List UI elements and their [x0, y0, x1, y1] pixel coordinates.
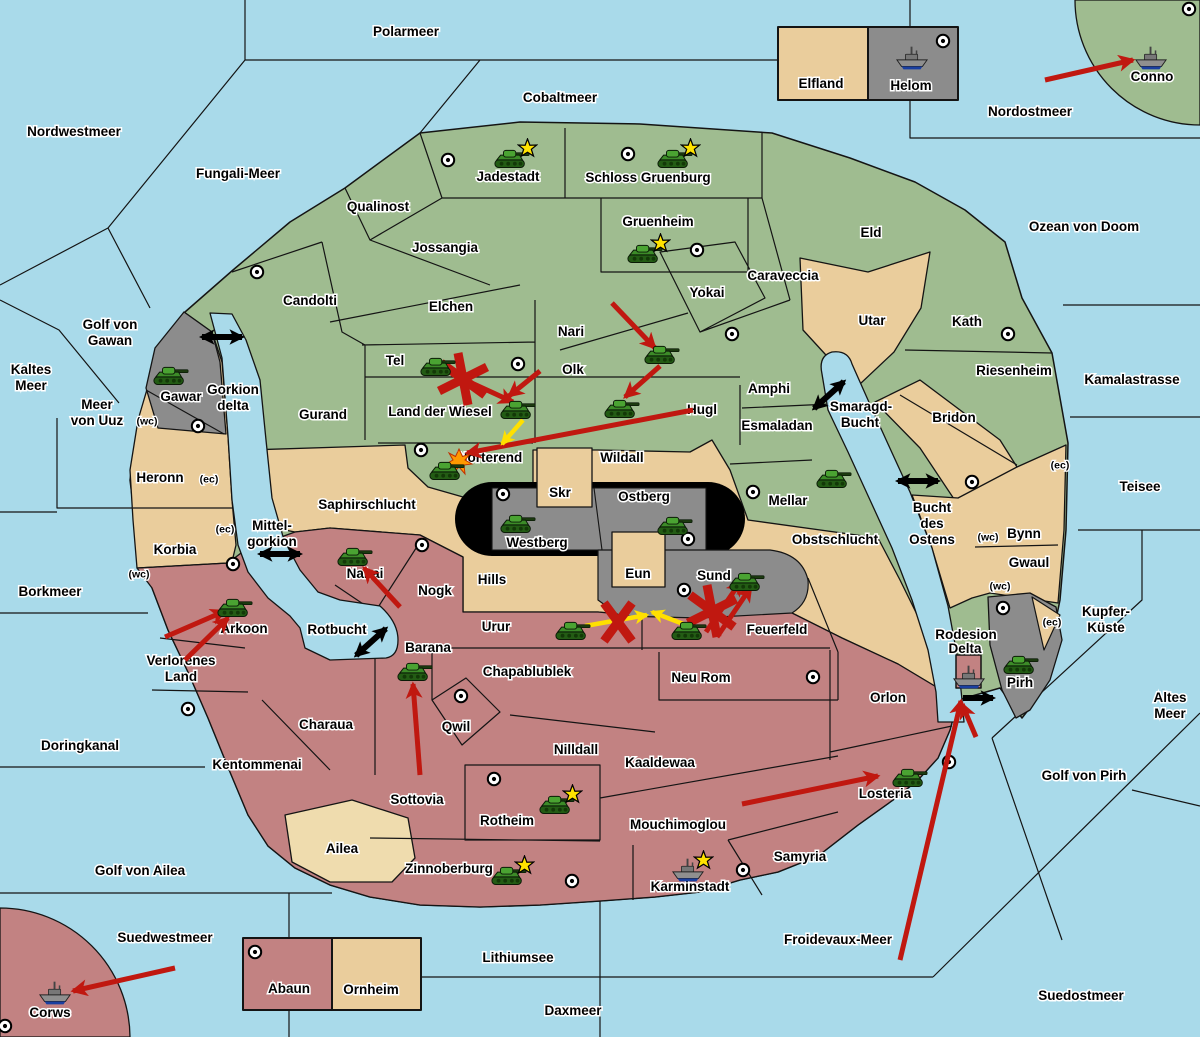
sea-label-bucht-32[interactable]: Bucht — [841, 415, 880, 430]
territory-label-ornheim-36[interactable]: Ornheim — [343, 982, 399, 997]
territory-label-corws-44[interactable]: Corws — [29, 1005, 70, 1020]
supply-center-dot — [1002, 328, 1014, 340]
territory-label-charaua-56[interactable]: Charaua — [299, 717, 354, 732]
territory-label-heronn-26[interactable]: Heronn — [136, 470, 183, 485]
territory-label-sund-41[interactable]: Sund — [697, 568, 731, 583]
sea-label-nordostmeer-3[interactable]: Nordostmeer — [988, 104, 1073, 119]
territory-label-bynn-30[interactable]: Bynn — [1007, 526, 1041, 541]
supply-center-dot — [966, 476, 978, 488]
territory-label-eld-7[interactable]: Eld — [860, 225, 881, 240]
sea-label-cobaltmeer-1[interactable]: Cobaltmeer — [523, 90, 598, 105]
game-map-screenshot: PolarmeerCobaltmeerNordwestmeerNordostme… — [0, 0, 1200, 1037]
sea-label-gawan-7[interactable]: Gawan — [88, 333, 132, 348]
sea-label-golf-von-pirh-19[interactable]: Golf von Pirh — [1042, 768, 1127, 783]
sea-label-suedwestmeer-23[interactable]: Suedwestmeer — [117, 930, 213, 945]
sea-label-fungali-meer-4[interactable]: Fungali-Meer — [196, 166, 281, 181]
territory-label-gurand-17[interactable]: Gurand — [299, 407, 347, 422]
territory-label-nari-10[interactable]: Nari — [558, 324, 584, 339]
supply-center-dot — [1183, 3, 1195, 15]
sea-label-meer-18[interactable]: Meer — [1154, 706, 1186, 721]
sea-label-froidevaux-meer-22[interactable]: Froidevaux-Meer — [784, 932, 893, 947]
sea-label-bucht-33[interactable]: Bucht — [913, 500, 952, 515]
territory-label-samyria-68[interactable]: Samyria — [774, 849, 827, 864]
territory-label-jadestadt-0[interactable]: Jadestadt — [476, 169, 540, 184]
territory-label-esmaladan-16[interactable]: Esmaladan — [741, 418, 812, 433]
sea-label-daxmeer-25[interactable]: Daxmeer — [544, 1003, 602, 1018]
coast-tag-wc-0: (wc) — [137, 416, 158, 428]
territory-label-schloss-gruenburg-1[interactable]: Schloss Gruenburg — [585, 170, 710, 185]
territory-label-feuerfeld-49[interactable]: Feuerfeld — [747, 622, 808, 637]
sea-label-delta-38[interactable]: Delta — [948, 641, 982, 656]
territory-label-tel-12[interactable]: Tel — [386, 353, 405, 368]
territory-label-verlorenes-51[interactable]: Verlorenes — [146, 653, 215, 668]
supply-center-dot — [249, 946, 261, 958]
territory-label-jossangia-3[interactable]: Jossangia — [412, 240, 479, 255]
sea-label-rotbucht-36[interactable]: Rotbucht — [307, 622, 367, 637]
territory-label-urur-48[interactable]: Urur — [482, 619, 511, 634]
territory-label-wildall-24[interactable]: Wildall — [600, 450, 643, 465]
supply-center-dot — [192, 420, 204, 432]
territory-label-gawar-28[interactable]: Gawar — [160, 389, 202, 404]
territory-label-losteria-64[interactable]: Losteria — [859, 786, 912, 801]
territory-label-sottovia-61[interactable]: Sottovia — [390, 792, 444, 807]
supply-center-dot — [442, 154, 454, 166]
territory-label-ostberg-40[interactable]: Ostberg — [618, 489, 670, 504]
supply-center-dot — [678, 584, 690, 596]
territory-label-nogk-46[interactable]: Nogk — [418, 583, 452, 598]
supply-center-dot — [997, 602, 1009, 614]
territory-label-arkoon-50[interactable]: Arkoon — [220, 621, 267, 636]
supply-center-dot — [488, 773, 500, 785]
sea-label-teisee-13[interactable]: Teisee — [1119, 479, 1161, 494]
territory-label-neu-rom-55[interactable]: Neu Rom — [671, 670, 730, 685]
territory-label-riesenheim-22[interactable]: Riesenheim — [976, 363, 1052, 378]
sea-label-ozean-von-doom-5[interactable]: Ozean von Doom — [1029, 219, 1139, 234]
sea-label-gorkion-30[interactable]: gorkion — [247, 534, 297, 549]
sea-label-borkmeer-14[interactable]: Borkmeer — [18, 584, 82, 599]
territory-label-olk-11[interactable]: Olk — [562, 362, 584, 377]
sea-label-meer-10[interactable]: Meer — [81, 397, 113, 412]
territory-label-qwil-57[interactable]: Qwil — [442, 719, 471, 734]
supply-center-dot — [415, 444, 427, 456]
territory-label-land-der-wiesel-13[interactable]: Land der Wiesel — [388, 404, 491, 419]
territory-label-kaaldewaa-59[interactable]: Kaaldewaa — [625, 755, 695, 770]
sea-label-gorkion-27[interactable]: Gorkion — [207, 382, 259, 397]
territory-label-elfland-34[interactable]: Elfland — [798, 76, 843, 91]
territory-label-conno-43[interactable]: Conno — [1131, 69, 1174, 84]
territory-label-chapablublek-54[interactable]: Chapablublek — [483, 664, 572, 679]
sea-label-delta-28[interactable]: delta — [217, 398, 249, 413]
coast-tag-ec-7: (ec) — [1043, 617, 1062, 629]
supply-center-dot — [937, 35, 949, 47]
sea-label-kaltes-8[interactable]: Kaltes — [11, 362, 52, 377]
supply-center-dot — [726, 328, 738, 340]
territory-label-obstschlucht-29[interactable]: Obstschlucht — [792, 532, 879, 547]
supply-center-dot — [0, 1020, 11, 1032]
territory-label-nilldall-58[interactable]: Nilldall — [554, 742, 598, 757]
territory-label-westberg-39[interactable]: Westberg — [506, 535, 567, 550]
territory-label-helom-35[interactable]: Helom — [890, 78, 931, 93]
box-abaun-ornheim[interactable] — [243, 938, 421, 1010]
territory-label-orlon-65[interactable]: Orlon — [870, 690, 906, 705]
territory-label-kath-21[interactable]: Kath — [952, 314, 982, 329]
sea-label-kupfer-15[interactable]: Kupfer- — [1082, 604, 1130, 619]
sea-label-k-ste-16[interactable]: Küste — [1087, 620, 1125, 635]
territory-label-gwaul-31[interactable]: Gwaul — [1009, 555, 1050, 570]
sea-label-von-uuz-11[interactable]: von Uuz — [71, 413, 124, 428]
sea-label-doringkanal-20[interactable]: Doringkanal — [41, 738, 119, 753]
territory-label-hills-47[interactable]: Hills — [478, 572, 507, 587]
sea-label-mittel-29[interactable]: Mittel- — [252, 518, 292, 533]
territory-label-yokai-6[interactable]: Yokai — [689, 285, 724, 300]
supply-center-dot — [737, 864, 749, 876]
territory-label-korbia-27[interactable]: Korbia — [154, 542, 197, 557]
strategy-map[interactable]: PolarmeerCobaltmeerNordwestmeerNordostme… — [0, 0, 1200, 1037]
supply-center-dot — [566, 875, 578, 887]
supply-center-dot — [455, 690, 467, 702]
territory-label-mellar-19[interactable]: Mellar — [768, 493, 808, 508]
sea-label-golf-von-6[interactable]: Golf von — [83, 317, 138, 332]
coast-tag-ec-2: (ec) — [216, 524, 235, 536]
territory-label-caraveccia-5[interactable]: Caraveccia — [747, 268, 819, 283]
territory-label-skr-32[interactable]: Skr — [549, 485, 572, 500]
supply-center-dot — [691, 244, 703, 256]
coast-tag-ec-1: (ec) — [200, 474, 219, 486]
supply-center-dot — [497, 488, 509, 500]
territory-label-utar-20[interactable]: Utar — [858, 313, 886, 328]
coast-tag-wc-3: (wc) — [129, 569, 150, 581]
sea-label-meer-9[interactable]: Meer — [15, 378, 47, 393]
supply-center-dot — [416, 539, 428, 551]
territory-label-abaun-37[interactable]: Abaun — [268, 981, 310, 996]
sea-label-ostens-35[interactable]: Ostens — [909, 532, 955, 547]
supply-center-dot — [747, 486, 759, 498]
supply-center-dot — [182, 703, 194, 715]
territory-label-gruenheim-4[interactable]: Gruenheim — [622, 214, 693, 229]
sea-label-smaragd-31[interactable]: Smaragd- — [830, 399, 892, 414]
coast-tag-ec-5: (ec) — [1051, 460, 1070, 472]
sea-label-nordwestmeer-2[interactable]: Nordwestmeer — [27, 124, 122, 139]
sea-label-lithiumsee-24[interactable]: Lithiumsee — [482, 950, 554, 965]
territory-label-mouchimoglou-63[interactable]: Mouchimoglou — [630, 817, 726, 832]
supply-center-dot — [512, 358, 524, 370]
territory-label-land-52[interactable]: Land — [165, 669, 197, 684]
territory-label-pirh-42[interactable]: Pirh — [1007, 675, 1033, 690]
territory-label-kentommenai-60[interactable]: Kentommenai — [212, 757, 301, 772]
coast-tag-wc-6: (wc) — [990, 581, 1011, 593]
supply-center-dot — [251, 266, 263, 278]
sea-label-polarmeer-0[interactable]: Polarmeer — [373, 24, 440, 39]
territory-label-qualinost-2[interactable]: Qualinost — [347, 199, 410, 214]
territory-label-eun-33[interactable]: Eun — [625, 566, 651, 581]
coast-tag-wc-4: (wc) — [978, 532, 999, 544]
territory-label-rotheim-62[interactable]: Rotheim — [480, 813, 534, 828]
territory-label-elchen-9[interactable]: Elchen — [429, 299, 473, 314]
territory-label-ailea-38[interactable]: Ailea — [326, 841, 359, 856]
supply-center-dot — [227, 558, 239, 570]
territory-label-zinnoberburg-66[interactable]: Zinnoberburg — [405, 861, 493, 876]
territory-label-candolti-8[interactable]: Candolti — [283, 293, 337, 308]
territory-label-bridon-23[interactable]: Bridon — [932, 410, 976, 425]
supply-center-dot — [622, 148, 634, 160]
sea-label-kamalastrasse-12[interactable]: Kamalastrasse — [1084, 372, 1180, 387]
sea-label-altes-17[interactable]: Altes — [1153, 690, 1186, 705]
sea-label-golf-von-ailea-21[interactable]: Golf von Ailea — [95, 863, 186, 878]
sea-label-suedostmeer-26[interactable]: Suedostmeer — [1038, 988, 1124, 1003]
territory-label-amphi-15[interactable]: Amphi — [748, 381, 790, 396]
sea-label-des-34[interactable]: des — [920, 516, 943, 531]
supply-center-dot — [807, 671, 819, 683]
territory-label-barana-53[interactable]: Barana — [405, 640, 451, 655]
sea-label-rodesion-37[interactable]: Rodesion — [935, 627, 997, 642]
territory-label-saphirschlucht-25[interactable]: Saphirschlucht — [318, 497, 416, 512]
